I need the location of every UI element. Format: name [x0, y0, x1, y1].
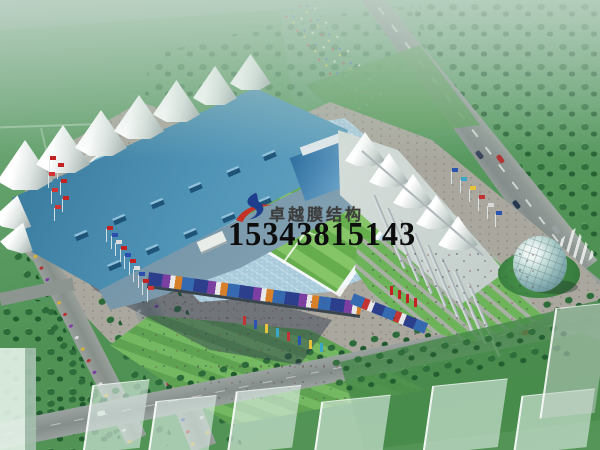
- plaza-banner: [276, 328, 279, 337]
- flag: [452, 168, 458, 172]
- flag: [488, 203, 494, 207]
- plaza-banner: [287, 332, 290, 341]
- stadium-aerial-rendering: 卓越膜结构 15343815143: [0, 0, 600, 450]
- flag: [139, 272, 145, 276]
- flag: [52, 188, 58, 192]
- plaza-banner: [265, 324, 268, 333]
- ghost-building: [82, 379, 149, 450]
- ghost-building: [422, 378, 507, 450]
- flag: [130, 259, 136, 263]
- flag: [58, 163, 64, 167]
- flag: [116, 240, 122, 244]
- car: [475, 150, 484, 160]
- ghost-building: [147, 395, 216, 450]
- flag: [125, 253, 131, 257]
- flag: [121, 246, 127, 250]
- plaza-banner: [414, 298, 417, 307]
- plaza-banner: [390, 286, 393, 295]
- plaza-crowd: [140, 298, 330, 368]
- flag: [470, 186, 476, 190]
- flag: [112, 233, 118, 237]
- plaza-banner: [406, 294, 409, 303]
- flag: [143, 279, 149, 283]
- plaza-banner: [398, 290, 401, 299]
- flag: [55, 205, 61, 209]
- plaza-banner: [243, 316, 246, 325]
- flag: [50, 156, 56, 160]
- ghost-building: [227, 385, 301, 450]
- flag: [63, 196, 69, 200]
- plaza-banner: [309, 340, 312, 349]
- ghost-building: [313, 395, 390, 450]
- corner-building: [0, 348, 36, 450]
- plaza-banner: [320, 343, 323, 352]
- flag: [49, 172, 55, 176]
- flag: [148, 286, 154, 290]
- flag: [496, 211, 502, 215]
- flag: [107, 226, 113, 230]
- flag: [134, 266, 140, 270]
- plaza-banner: [298, 336, 301, 345]
- flag: [461, 177, 467, 181]
- plaza-banner: [254, 320, 257, 329]
- flag: [61, 179, 67, 183]
- watermark-phone-number: 15343815143: [228, 216, 416, 254]
- flag: [479, 195, 485, 199]
